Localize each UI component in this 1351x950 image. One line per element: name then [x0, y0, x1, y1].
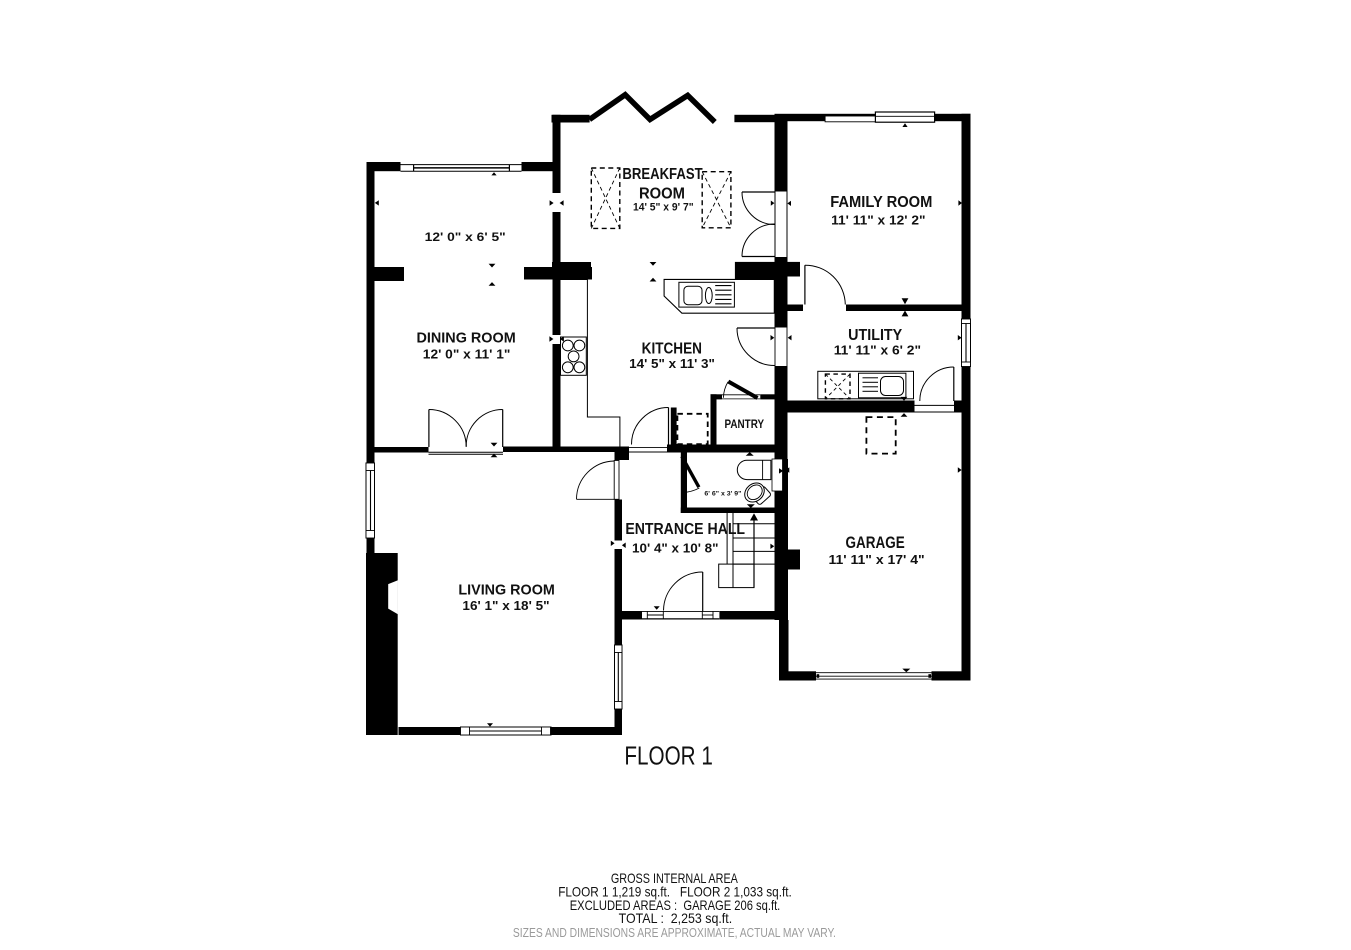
svg-text:11' 11" x 17' 4": 11' 11" x 17' 4" [829, 552, 925, 567]
svg-text:LIVING ROOM: LIVING ROOM [458, 582, 554, 598]
svg-text:KITCHEN: KITCHEN [642, 340, 702, 357]
svg-text:GARAGE: GARAGE [846, 533, 905, 552]
svg-text:FAMILY ROOM: FAMILY ROOM [830, 194, 932, 211]
svg-text:14' 5" x 9' 7": 14' 5" x 9' 7" [633, 201, 694, 213]
svg-text:ENTRANCE HALL: ENTRANCE HALL [625, 521, 745, 538]
svg-text:TOTAL : 2,253 sq.ft.: TOTAL : 2,253 sq.ft. [619, 910, 733, 926]
svg-text:14' 5" x 11' 3": 14' 5" x 11' 3" [629, 356, 715, 371]
svg-text:PANTRY: PANTRY [725, 418, 765, 431]
svg-text:BREAKFAST: BREAKFAST [622, 166, 703, 183]
svg-text:16' 1" x 18' 5": 16' 1" x 18' 5" [462, 598, 549, 613]
svg-text:FLOOR 1: FLOOR 1 [624, 743, 713, 771]
svg-text:11' 11" x 6' 2": 11' 11" x 6' 2" [834, 342, 921, 357]
svg-text:DINING ROOM: DINING ROOM [417, 330, 516, 347]
svg-text:11' 11" x 12' 2": 11' 11" x 12' 2" [831, 213, 925, 228]
svg-text:6' 6" x 3' 9": 6' 6" x 3' 9" [704, 490, 741, 497]
svg-text:ROOM: ROOM [639, 186, 685, 203]
svg-text:10' 4" x 10' 8": 10' 4" x 10' 8" [632, 541, 719, 556]
svg-text:12' 0" x 6' 5": 12' 0" x 6' 5" [425, 230, 506, 244]
svg-text:12' 0" x 11' 1": 12' 0" x 11' 1" [423, 346, 511, 361]
svg-text:SIZES AND DIMENSIONS ARE APPRO: SIZES AND DIMENSIONS ARE APPROXIMATE, AC… [513, 925, 836, 940]
